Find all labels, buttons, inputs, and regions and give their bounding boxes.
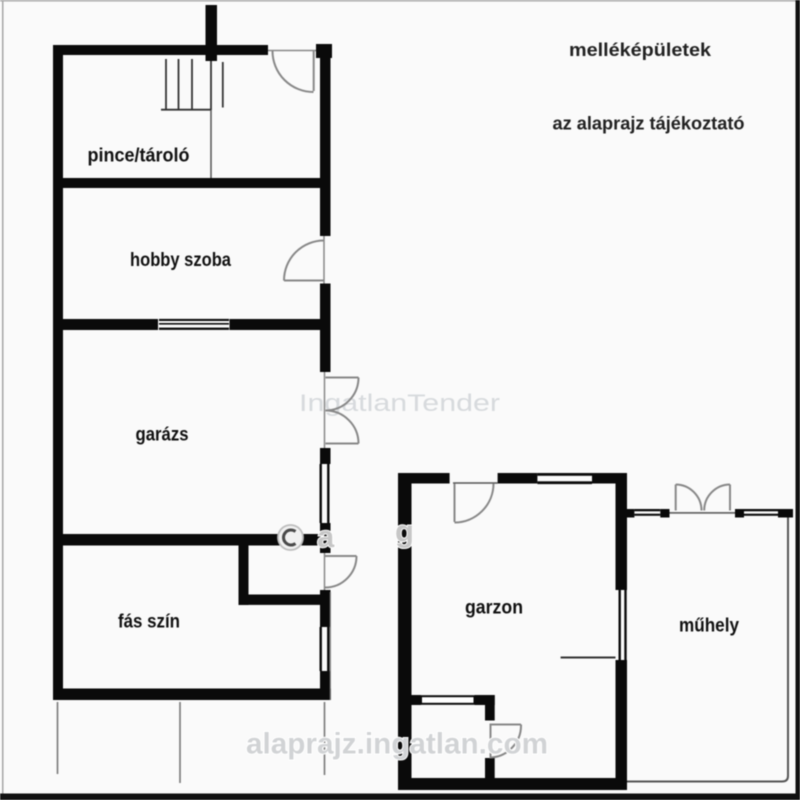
svg-text:műhely: műhely	[679, 615, 739, 637]
svg-text:hobby szoba: hobby szoba	[130, 249, 231, 271]
svg-text:melléképületek: melléképületek	[569, 39, 712, 60]
svg-text:g: g	[395, 514, 414, 549]
svg-text:fás szín: fás szín	[118, 611, 180, 633]
svg-text:a: a	[317, 519, 335, 554]
svg-text:IngatlanTender: IngatlanTender	[299, 390, 500, 417]
svg-text:pince/tároló: pince/tároló	[88, 145, 190, 167]
svg-text:az alaprajz tájékoztató: az alaprajz tájékoztató	[553, 113, 745, 134]
svg-text:garázs: garázs	[136, 424, 189, 446]
svg-text:garzon: garzon	[465, 597, 523, 619]
svg-text:alaprajz.ingatlan.com: alaprajz.ingatlan.com	[246, 728, 548, 761]
